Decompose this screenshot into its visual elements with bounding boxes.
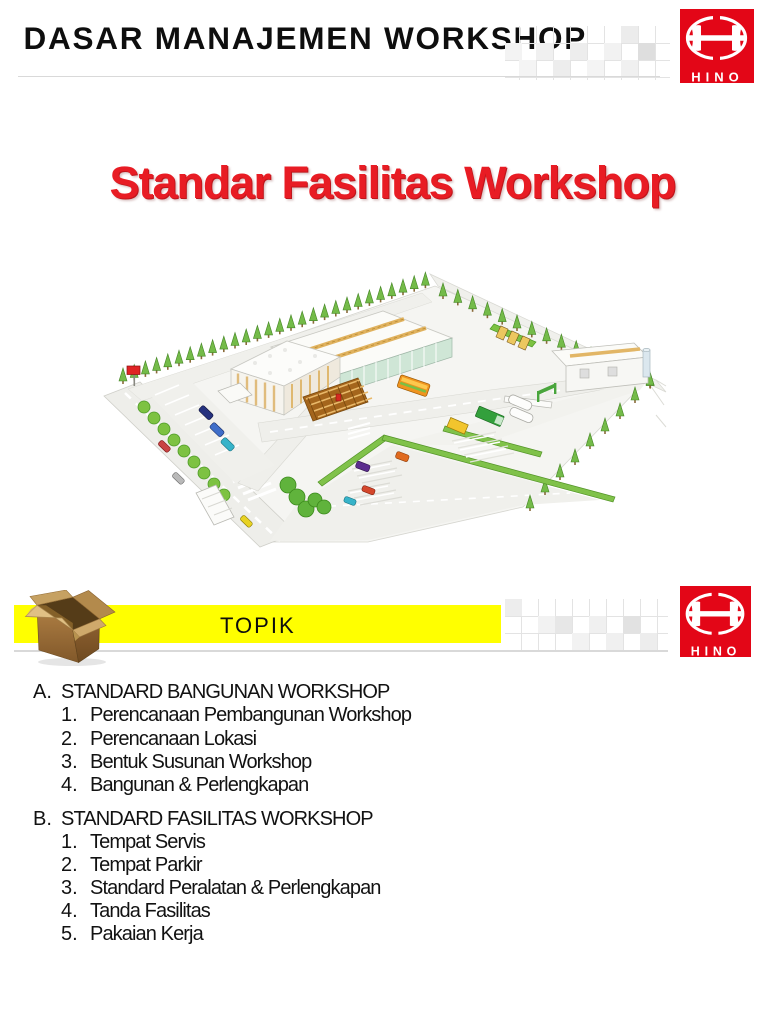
svg-text:HINO: HINO — [691, 645, 741, 657]
svg-text:HINO: HINO — [691, 70, 744, 84]
